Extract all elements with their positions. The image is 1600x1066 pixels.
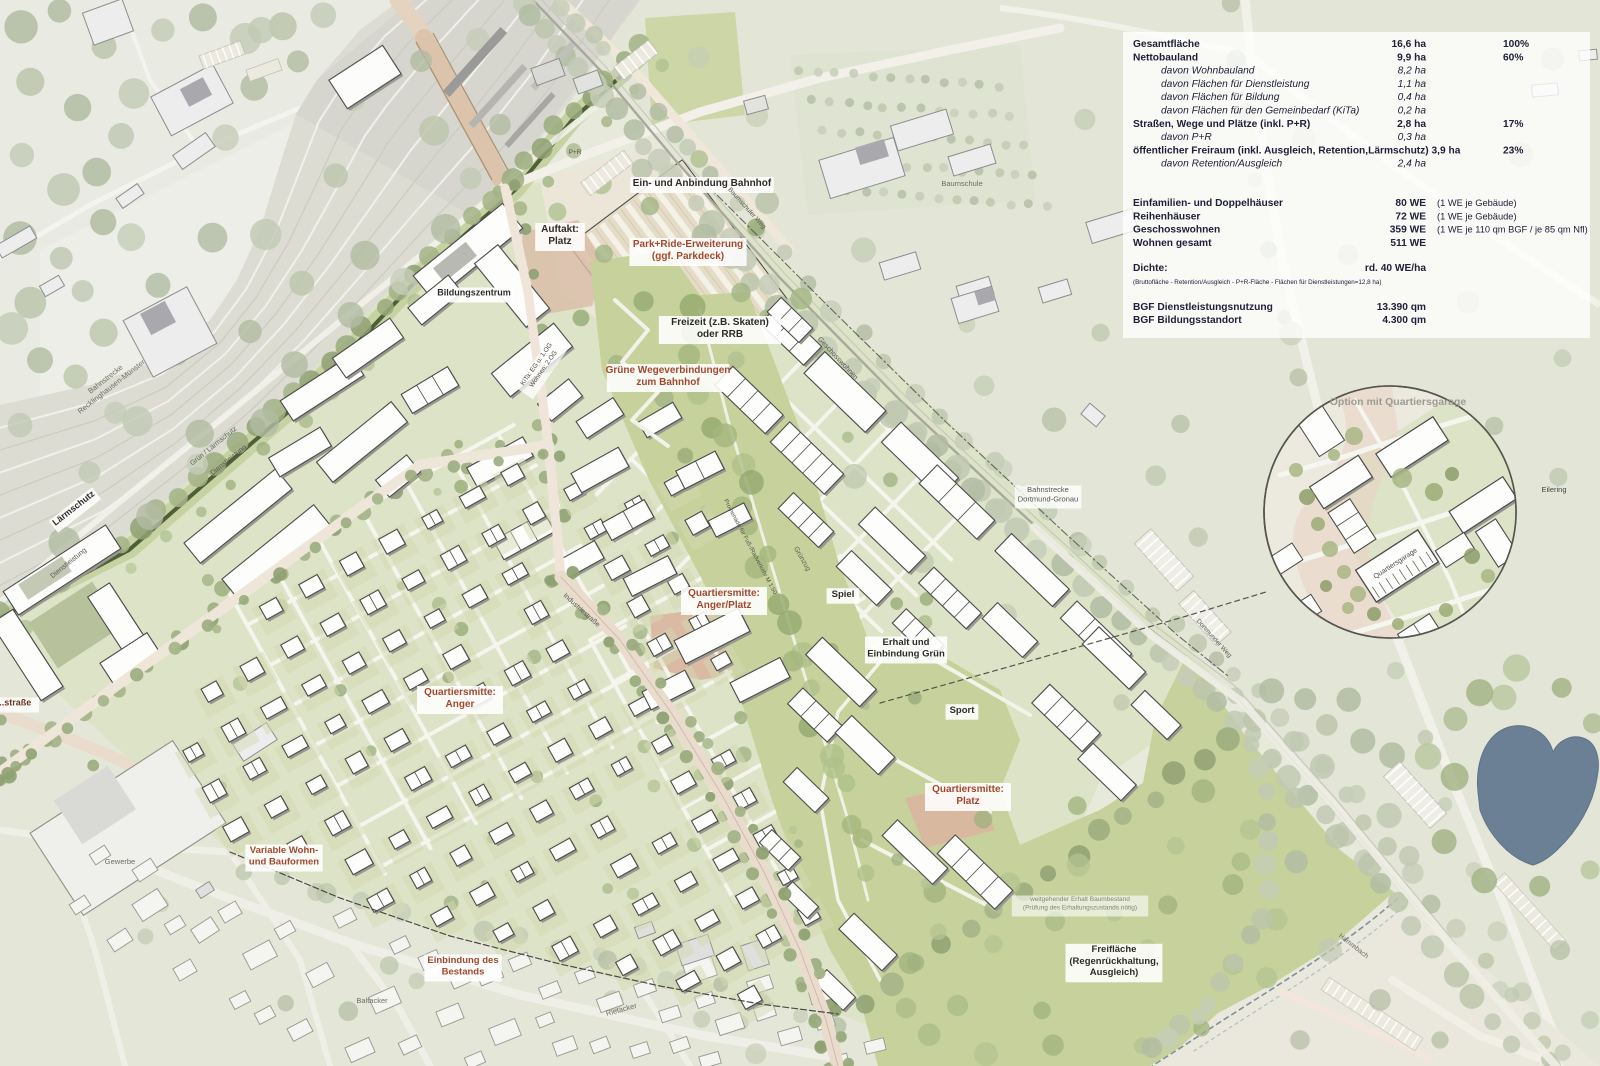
svg-text:16,6 ha: 16,6 ha [1391,39,1426,50]
svg-text:0,3 ha: 0,3 ha [1398,132,1427,143]
svg-text:2,4 ha: 2,4 ha [1397,159,1427,170]
svg-text:Platz: Platz [548,236,571,247]
svg-text:60%: 60% [1503,52,1523,63]
svg-text:Quartiersmitte:: Quartiersmitte: [424,687,496,698]
svg-text:Variable Wohn-: Variable Wohn- [250,845,318,856]
svg-text:Straßen, Wege und Plätze (inkl: Straßen, Wege und Plätze (inkl. P+R) [1133,119,1310,130]
svg-text:davon Flächen für Bildung: davon Flächen für Bildung [1161,92,1280,103]
svg-text:Ausgleich): Ausgleich) [1090,967,1139,978]
svg-text:Option mit Quartiersgarage: Option mit Quartiersgarage [1330,396,1467,408]
svg-text:Bestands: Bestands [442,967,485,978]
svg-text:Sport: Sport [950,705,976,716]
svg-text:(Regenrückhaltung,: (Regenrückhaltung, [1069,956,1158,967]
svg-text:Park+Ride-Erweiterung: Park+Ride-Erweiterung [633,239,743,250]
svg-text:13.390 qm: 13.390 qm [1377,302,1426,313]
svg-text:Spiel: Spiel [832,589,855,600]
svg-text:Ein- und Anbindung Bahnhof: Ein- und Anbindung Bahnhof [633,178,772,189]
svg-text:8,2 ha: 8,2 ha [1398,66,1427,77]
svg-text:Einbindung Grün: Einbindung Grün [867,649,945,660]
svg-text:Anger/Platz: Anger/Platz [696,600,751,611]
svg-text:Geschosswohnen: Geschosswohnen [1133,225,1220,236]
svg-text:Freizeit (z.B. Skaten): Freizeit (z.B. Skaten) [671,317,769,328]
svg-text:9,9 ha: 9,9 ha [1397,52,1426,63]
svg-text:0,2 ha: 0,2 ha [1398,106,1427,117]
svg-text:1,1 ha: 1,1 ha [1398,79,1427,90]
svg-text:Dortmund-Gronau: Dortmund-Gronau [1018,495,1078,504]
svg-text:Platz: Platz [956,796,979,807]
svg-text:Nettobauland: Nettobauland [1133,52,1198,63]
svg-text:Gewerbe: Gewerbe [105,857,135,866]
svg-text:...straße: ...straße [0,698,31,708]
svg-text:Gesamtfläche: Gesamtfläche [1133,39,1200,50]
svg-text:(1 WE je 110 qm BGF / je 85 qm: (1 WE je 110 qm BGF / je 85 qm Nfl) [1437,225,1588,235]
svg-text:Einfamilien- und Doppelhäuser: Einfamilien- und Doppelhäuser [1133,198,1283,209]
svg-text:Eilering: Eilering [1541,485,1566,494]
svg-text:4.300 qm: 4.300 qm [1382,315,1426,326]
svg-text:(ggf. Parkdeck): (ggf. Parkdeck) [652,251,724,262]
svg-text:davon Retention/Ausgleich: davon Retention/Ausgleich [1161,159,1283,170]
svg-text:17%: 17% [1503,119,1523,130]
svg-text:80 WE: 80 WE [1395,198,1426,209]
svg-text:359 WE: 359 WE [1390,225,1426,236]
svg-text:511 WE: 511 WE [1390,238,1426,249]
svg-text:BGF Dienstleistungsnutzung: BGF Dienstleistungsnutzung [1133,302,1273,313]
svg-text:(1 WE je Gebäude): (1 WE je Gebäude) [1437,198,1517,208]
svg-text:Quartiersmitte:: Quartiersmitte: [932,784,1004,795]
svg-text:Baltacker: Baltacker [356,996,388,1005]
svg-text:(Prüfung des Erhaltungszustand: (Prüfung des Erhaltungszustands nötig) [1023,905,1137,912]
svg-text:davon Flächen für Dienstleistu: davon Flächen für Dienstleistung [1161,79,1310,90]
svg-text:Einbindung des: Einbindung des [427,955,498,966]
svg-text:(Bruttofläche - Retention/Ausg: (Bruttofläche - Retention/Ausgleich - P+… [1133,279,1382,286]
svg-text:P+R: P+R [569,149,582,156]
svg-text:Freifläche: Freifläche [1092,944,1137,955]
svg-text:Bahnstrecke: Bahnstrecke [1027,485,1069,494]
svg-text:und Bauformen: und Bauformen [249,857,319,868]
svg-text:Dichte:: Dichte: [1133,263,1168,274]
svg-text:2,8 ha: 2,8 ha [1397,119,1426,130]
svg-text:davon P+R: davon P+R [1161,132,1212,143]
svg-text:BGF Bildungsstandort: BGF Bildungsstandort [1133,315,1242,326]
svg-text:Reihenhäuser: Reihenhäuser [1133,211,1200,222]
svg-text:(1 WE je Gebäude): (1 WE je Gebäude) [1437,211,1517,221]
svg-text:öffentlicher Freiraum (inkl. A: öffentlicher Freiraum (inkl. Ausgleich, … [1133,145,1461,156]
svg-text:Erhalt und: Erhalt und [883,637,930,648]
svg-text:Quartiersmitte:: Quartiersmitte: [688,588,760,599]
svg-text:100%: 100% [1503,39,1529,50]
svg-text:davon Wohnbauland: davon Wohnbauland [1161,66,1255,77]
svg-text:Anger: Anger [446,699,475,710]
svg-text:Bildungszentrum: Bildungszentrum [437,288,511,298]
svg-text:Grüne Wegeverbindungen: Grüne Wegeverbindungen [606,365,731,376]
svg-text:Auftakt:: Auftakt: [541,224,579,235]
svg-text:Wohnen gesamt: Wohnen gesamt [1133,238,1212,249]
svg-text:Baumschule: Baumschule [941,179,982,188]
svg-text:weitgehender Erhalt Baumbestan: weitgehender Erhalt Baumbestand [1029,896,1130,903]
svg-text:0,4 ha: 0,4 ha [1398,92,1427,103]
svg-text:davon Flächen für den Gemeinbe: davon Flächen für den Gemeinbedarf (KiTa… [1161,106,1359,117]
svg-text:zum Bahnhof: zum Bahnhof [636,377,700,388]
svg-text:rd. 40 WE/ha: rd. 40 WE/ha [1365,263,1426,274]
svg-text:oder RRB: oder RRB [697,329,743,340]
svg-text:72 WE: 72 WE [1395,211,1426,222]
svg-text:23%: 23% [1503,145,1523,156]
